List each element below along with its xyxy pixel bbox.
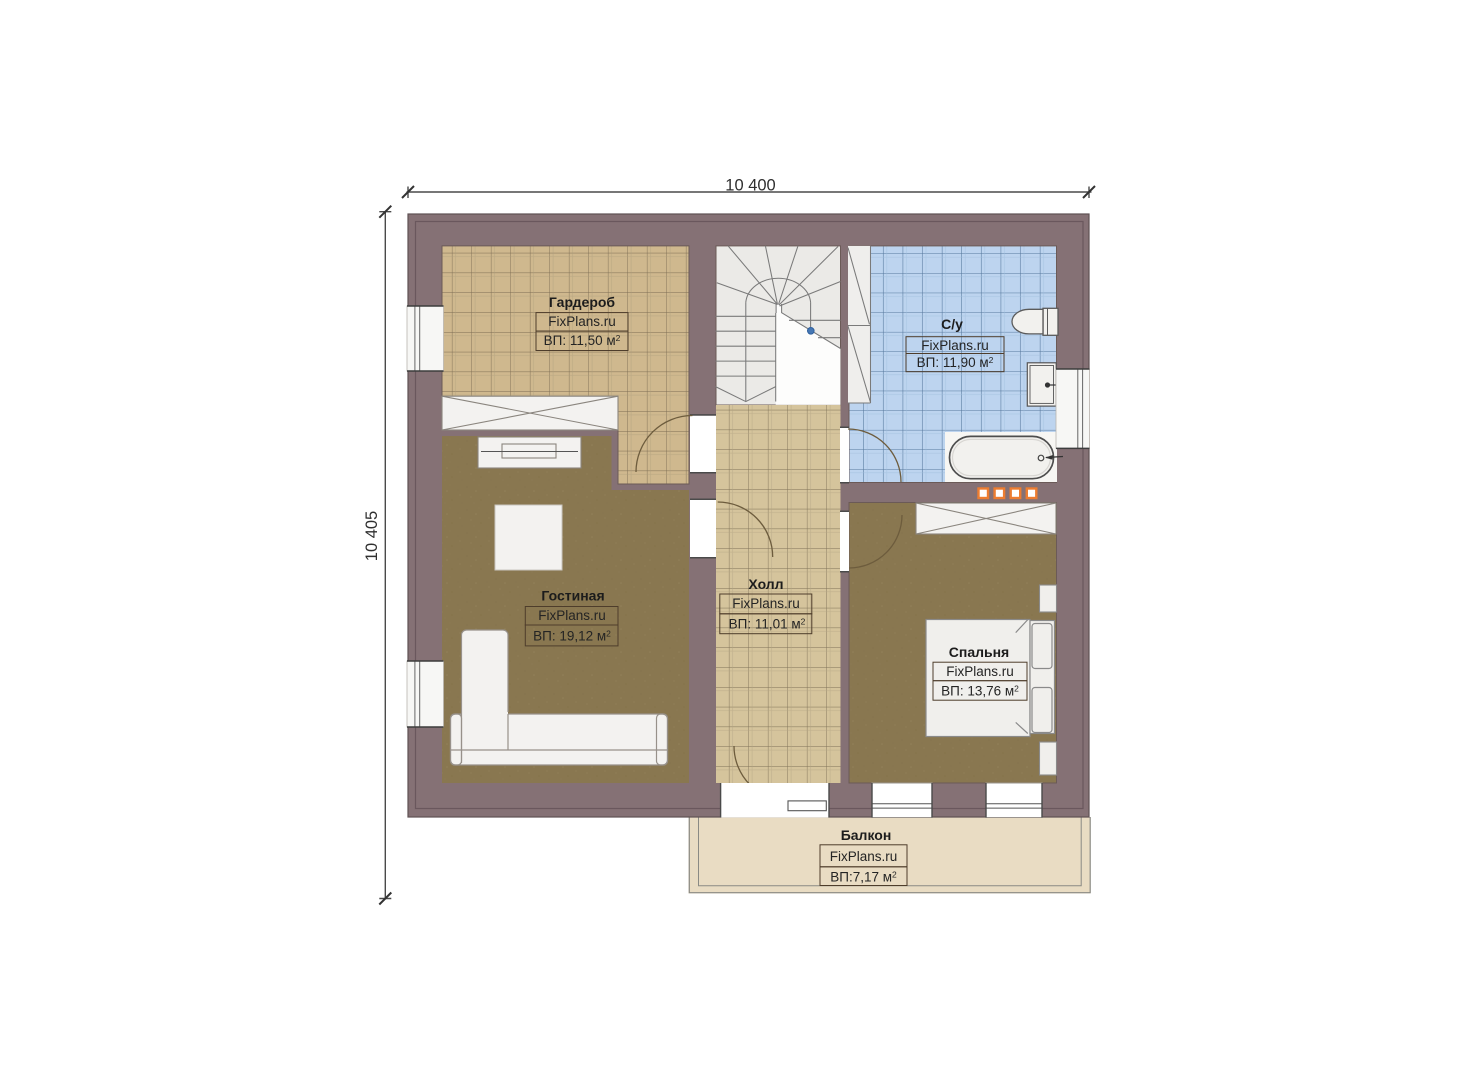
svg-text:FixPlans.ru: FixPlans.ru	[732, 596, 800, 611]
svg-text:FixPlans.ru: FixPlans.ru	[946, 664, 1014, 679]
svg-text:ВП:7,17 м2: ВП:7,17 м2	[830, 869, 897, 884]
svg-text:Гардероб: Гардероб	[549, 294, 616, 310]
svg-text:ВП: 13,76 м2: ВП: 13,76 м2	[941, 684, 1019, 699]
svg-text:Балкон: Балкон	[841, 827, 892, 843]
svg-text:ВП: 11,01 м2: ВП: 11,01 м2	[729, 617, 806, 632]
svg-text:FixPlans.ru: FixPlans.ru	[548, 314, 616, 329]
svg-text:С/у: С/у	[941, 316, 963, 332]
svg-text:Холл: Холл	[748, 576, 783, 592]
svg-text:FixPlans.ru: FixPlans.ru	[921, 338, 989, 353]
svg-text:Спальня: Спальня	[949, 644, 1009, 660]
svg-text:ВП: 11,90 м2: ВП: 11,90 м2	[917, 355, 994, 370]
svg-text:10 400: 10 400	[725, 177, 775, 195]
svg-text:Гостиная: Гостиная	[541, 588, 604, 604]
svg-text:10 405: 10 405	[363, 511, 381, 561]
svg-text:FixPlans.ru: FixPlans.ru	[538, 608, 606, 623]
svg-text:FixPlans.ru: FixPlans.ru	[830, 849, 898, 864]
svg-text:ВП: 11,50 м2: ВП: 11,50 м2	[544, 333, 621, 348]
svg-text:ВП: 19,12 м2: ВП: 19,12 м2	[533, 628, 611, 643]
